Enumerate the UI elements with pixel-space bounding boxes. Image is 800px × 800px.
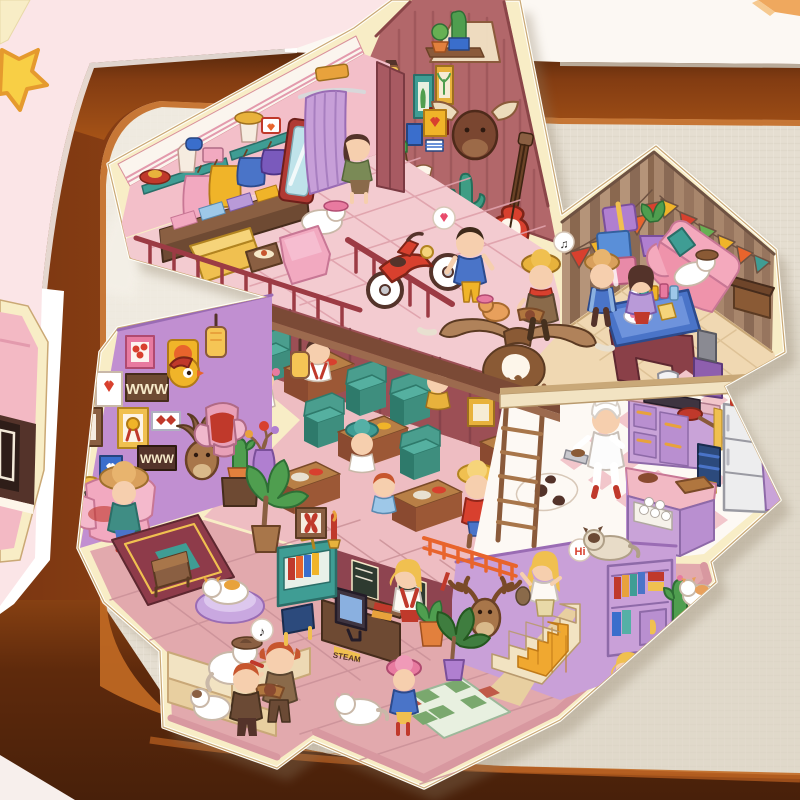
svg-text:♫: ♫ (560, 237, 569, 251)
svg-text:Hi: Hi (575, 546, 586, 558)
svg-text:WWW: WWW (126, 381, 169, 398)
svg-text:♪: ♪ (259, 624, 266, 639)
svg-text:WWW: WWW (140, 452, 175, 466)
